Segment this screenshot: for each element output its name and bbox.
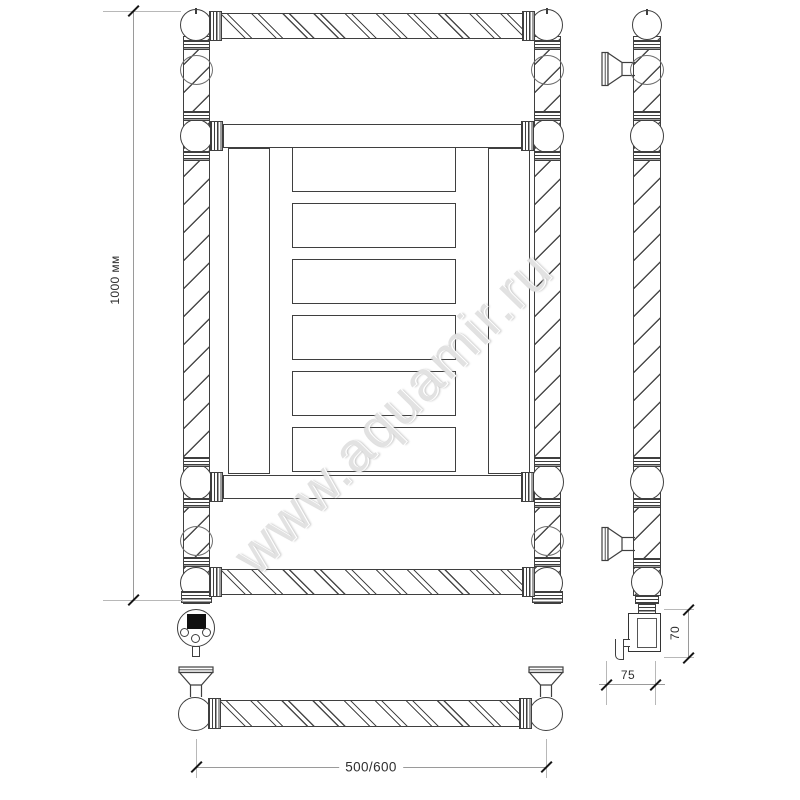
column-turning-detail — [180, 55, 213, 85]
cable-elbow — [615, 639, 624, 660]
column-collar — [183, 498, 210, 508]
column-turning-detail — [180, 526, 213, 556]
column-collar — [534, 151, 561, 161]
column-collar — [534, 557, 561, 567]
column-foot-collar — [532, 591, 563, 603]
ladder-rung — [292, 259, 456, 304]
ball-notch — [546, 8, 547, 14]
top-twisted-rail — [212, 13, 532, 39]
ladder-rung — [292, 203, 456, 248]
dimension-label: 500/600 — [339, 760, 403, 775]
rail-end-collar — [522, 567, 535, 597]
column-collar — [633, 498, 661, 508]
column-collar — [633, 40, 661, 50]
column-collar — [633, 111, 661, 121]
heating-element-stem — [192, 646, 200, 657]
column-foot-collar — [181, 591, 212, 603]
column-collar — [633, 558, 661, 568]
column-turning-detail — [531, 526, 564, 556]
ladder-rung — [292, 147, 456, 192]
column-turning-detail — [531, 55, 564, 85]
extension-line — [103, 600, 183, 601]
bottom-view-rail — [212, 700, 520, 727]
rail-end-collar — [519, 698, 532, 729]
column-ball — [531, 464, 564, 500]
collector-fitting — [521, 472, 534, 502]
column-collar — [183, 40, 210, 50]
column-collar — [534, 457, 561, 467]
rail-end-collar — [522, 11, 535, 41]
side-bottom-ball — [631, 566, 663, 598]
dimension-line — [133, 11, 134, 601]
end-cap-ball — [178, 697, 212, 731]
column-collar — [534, 111, 561, 121]
column-collar — [183, 151, 210, 161]
left-vertical-tube — [228, 148, 270, 474]
rail-end-collar — [209, 567, 222, 597]
column-collar — [183, 111, 210, 121]
extension-line — [546, 739, 547, 778]
heating-element-pin — [191, 634, 200, 643]
extension-line — [196, 739, 197, 778]
column-ball — [630, 119, 664, 153]
dimension-line — [688, 609, 689, 658]
wall-bracket-icon — [178, 666, 214, 698]
top-collector-tube — [223, 124, 533, 148]
dimension-label: 70 — [668, 626, 682, 640]
dimension-label: 75 — [621, 668, 635, 682]
rail-end-collar — [208, 698, 221, 729]
column-collar — [183, 457, 210, 467]
column-turning-detail — [630, 55, 664, 85]
ball-notch — [195, 8, 196, 14]
extension-line — [103, 11, 181, 12]
column-ball — [531, 119, 564, 153]
ball-notch — [646, 9, 647, 15]
column-collar — [183, 557, 210, 567]
collector-fitting — [521, 121, 534, 151]
end-cap-ball — [529, 697, 563, 731]
column-collar — [534, 498, 561, 508]
wall-bracket-icon — [528, 666, 564, 698]
column-collar — [633, 457, 661, 467]
dimension-label: 1000 мм — [108, 255, 122, 304]
element-box-inner — [637, 618, 657, 648]
column-ball — [180, 464, 213, 500]
heating-element-pin — [180, 628, 189, 637]
column-collar — [534, 40, 561, 50]
collector-fitting — [210, 121, 223, 151]
collector-fitting — [210, 472, 223, 502]
column-ball — [630, 464, 664, 500]
column-ball — [180, 119, 213, 153]
drawing-canvas: 1000 мм 500/600 70 75 www.aquamir.ru — [0, 0, 800, 800]
wall-bracket-icon — [601, 526, 635, 562]
heating-element-pin — [202, 628, 211, 637]
heating-element-terminal — [187, 614, 206, 629]
rail-end-collar — [209, 11, 222, 41]
column-collar — [633, 151, 661, 161]
